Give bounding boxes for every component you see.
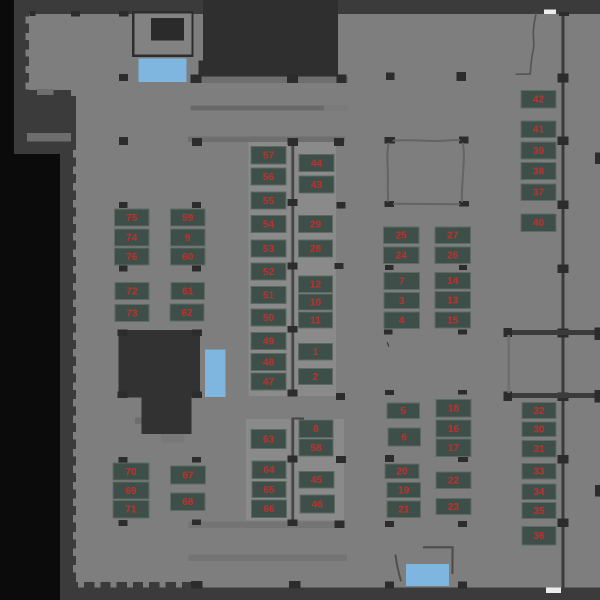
svg-text:26: 26 — [447, 251, 459, 262]
svg-text:42: 42 — [533, 95, 545, 106]
svg-text:72: 72 — [126, 286, 138, 297]
svg-text:61: 61 — [182, 286, 194, 297]
svg-text:46: 46 — [312, 499, 324, 510]
svg-text:28: 28 — [310, 244, 322, 255]
svg-text:52: 52 — [263, 267, 275, 278]
svg-text:3: 3 — [399, 296, 405, 307]
svg-text:40: 40 — [533, 218, 545, 229]
svg-text:63: 63 — [263, 434, 275, 445]
svg-text:19: 19 — [398, 485, 410, 496]
svg-text:20: 20 — [396, 467, 408, 478]
svg-text:22: 22 — [448, 476, 460, 487]
svg-text:53: 53 — [263, 244, 275, 255]
svg-text:44: 44 — [311, 158, 323, 169]
svg-text:14: 14 — [447, 276, 459, 287]
svg-text:18: 18 — [448, 404, 460, 415]
svg-text:66: 66 — [263, 504, 275, 515]
svg-text:45: 45 — [311, 475, 323, 486]
svg-text:24: 24 — [396, 251, 408, 262]
svg-text:15: 15 — [447, 315, 459, 326]
svg-text:32: 32 — [533, 406, 545, 417]
svg-text:12: 12 — [310, 280, 322, 291]
svg-text:60: 60 — [182, 252, 194, 263]
svg-text:31: 31 — [533, 444, 545, 455]
svg-text:55: 55 — [263, 196, 275, 207]
svg-text:64: 64 — [263, 465, 275, 476]
svg-text:39: 39 — [533, 146, 545, 157]
svg-text:71: 71 — [125, 505, 137, 516]
svg-text:56: 56 — [263, 172, 275, 183]
svg-text:8: 8 — [313, 424, 319, 435]
svg-text:75: 75 — [126, 213, 138, 224]
svg-text:59: 59 — [182, 213, 194, 224]
svg-text:37: 37 — [533, 188, 545, 199]
svg-text:48: 48 — [263, 357, 275, 368]
svg-text:50: 50 — [263, 313, 275, 324]
svg-text:11: 11 — [310, 315, 321, 326]
svg-text:29: 29 — [310, 219, 322, 230]
svg-text:23: 23 — [448, 502, 460, 513]
svg-text:16: 16 — [448, 424, 460, 435]
svg-text:7: 7 — [399, 276, 405, 287]
svg-text:65: 65 — [263, 485, 275, 496]
svg-text:33: 33 — [533, 467, 545, 478]
svg-text:9: 9 — [185, 233, 191, 244]
svg-text:54: 54 — [263, 219, 275, 230]
svg-text:5: 5 — [400, 406, 406, 417]
svg-text:1: 1 — [313, 347, 319, 358]
svg-text:21: 21 — [398, 505, 410, 516]
svg-text:17: 17 — [448, 443, 460, 454]
svg-text:47: 47 — [263, 377, 275, 388]
svg-text:2: 2 — [313, 372, 319, 383]
svg-text:38: 38 — [533, 166, 545, 177]
svg-text:30: 30 — [533, 425, 545, 436]
svg-text:69: 69 — [125, 486, 137, 497]
svg-text:58: 58 — [310, 443, 322, 454]
svg-text:57: 57 — [263, 151, 275, 162]
svg-text:74: 74 — [126, 233, 138, 244]
svg-text:67: 67 — [182, 470, 194, 481]
svg-text:76: 76 — [126, 252, 138, 263]
svg-text:51: 51 — [263, 290, 275, 301]
svg-text:36: 36 — [533, 531, 545, 542]
svg-text:34: 34 — [533, 487, 545, 498]
svg-text:73: 73 — [126, 308, 138, 319]
svg-text:43: 43 — [311, 180, 323, 191]
svg-text:4: 4 — [399, 316, 405, 327]
svg-text:49: 49 — [263, 336, 275, 347]
svg-text:68: 68 — [182, 497, 194, 508]
svg-text:13: 13 — [447, 295, 459, 306]
svg-text:25: 25 — [396, 231, 408, 242]
svg-text:6: 6 — [401, 432, 407, 443]
svg-text:41: 41 — [533, 125, 545, 136]
svg-text:27: 27 — [447, 231, 459, 242]
svg-text:35: 35 — [533, 506, 545, 517]
svg-text:70: 70 — [125, 467, 137, 478]
svg-text:62: 62 — [181, 308, 193, 319]
svg-text:10: 10 — [310, 297, 322, 308]
